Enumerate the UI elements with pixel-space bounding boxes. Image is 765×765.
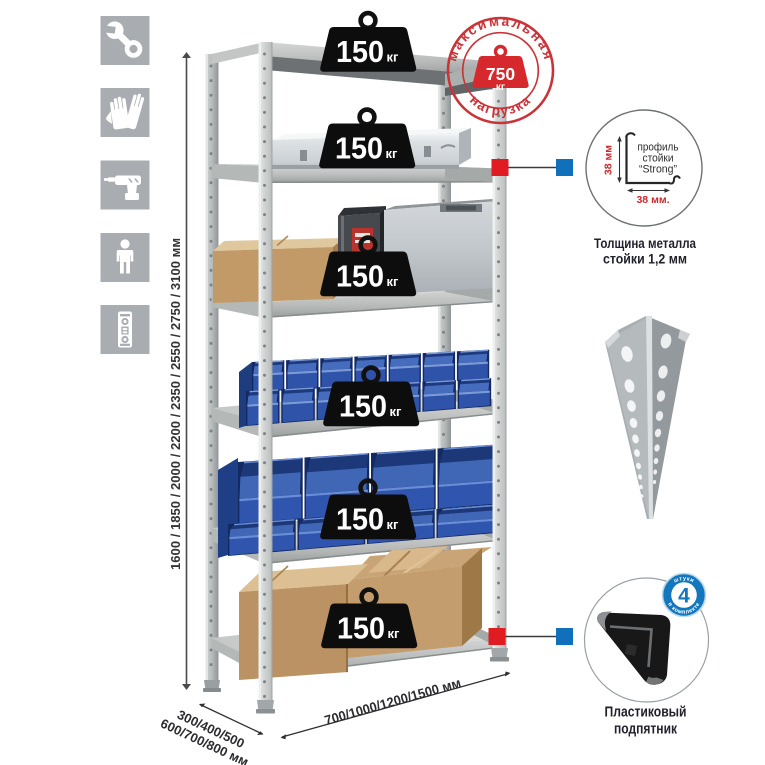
svg-text:кг: кг bbox=[390, 404, 403, 419]
svg-text:кг: кг bbox=[388, 626, 401, 641]
svg-text:150: 150 bbox=[336, 502, 384, 537]
svg-text:Толщина металла: Толщина металла bbox=[594, 235, 696, 251]
svg-text:подпятник: подпятник bbox=[614, 722, 678, 738]
svg-text:150: 150 bbox=[335, 131, 383, 166]
svg-text:1600 / 1850 / 2000 / 2200 / 23: 1600 / 1850 / 2000 / 2200 / 2350 / 2550 … bbox=[168, 238, 183, 570]
svg-text:150: 150 bbox=[336, 34, 384, 69]
svg-text:700/1000/1200/1500 мм: 700/1000/1200/1500 мм bbox=[323, 675, 463, 728]
svg-text:150: 150 bbox=[339, 389, 387, 424]
svg-text:38 мм: 38 мм bbox=[603, 145, 615, 175]
svg-text:кг: кг bbox=[496, 82, 505, 93]
svg-text:38 мм.: 38 мм. bbox=[636, 194, 669, 206]
svg-text:“Strong”: “Strong” bbox=[639, 164, 677, 176]
svg-text:кг: кг bbox=[387, 274, 400, 289]
svg-text:Пластиковый: Пластиковый bbox=[605, 705, 687, 721]
svg-text:150: 150 bbox=[336, 259, 384, 294]
svg-text:750: 750 bbox=[486, 64, 515, 84]
svg-text:стойки 1,2 мм: стойки 1,2 мм bbox=[603, 251, 687, 267]
svg-text:кг: кг bbox=[387, 50, 400, 65]
svg-text:4: 4 bbox=[678, 585, 690, 608]
svg-text:150: 150 bbox=[337, 611, 385, 646]
svg-text:кг: кг bbox=[387, 517, 400, 532]
svg-text:кг: кг bbox=[386, 146, 399, 161]
